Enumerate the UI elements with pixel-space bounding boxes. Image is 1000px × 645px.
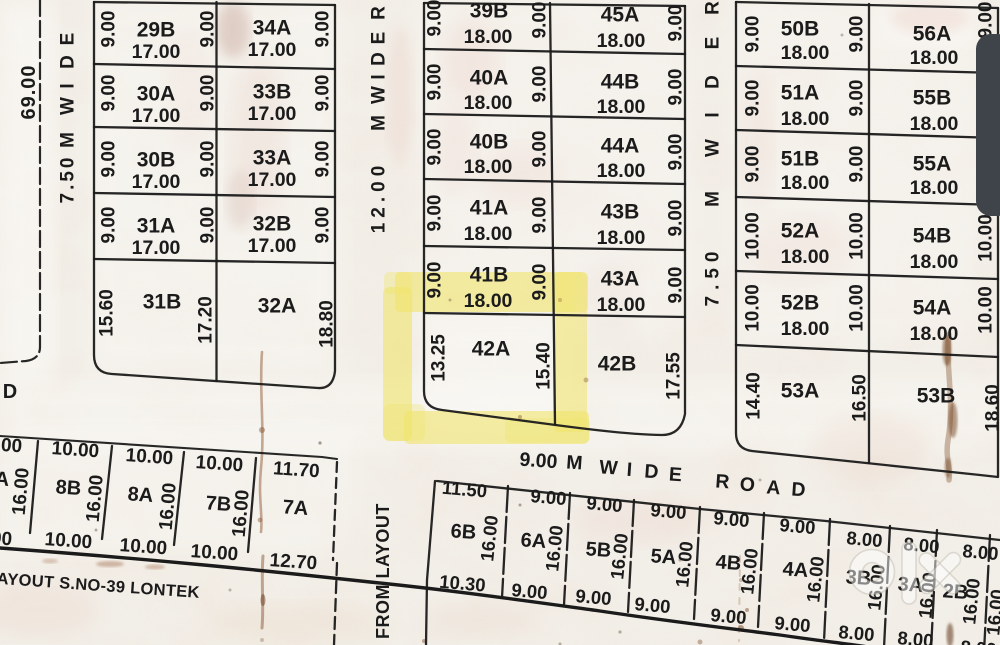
svg-text:7.50: 7.50	[58, 155, 79, 204]
svg-text:18.60: 18.60	[983, 384, 1000, 432]
svg-text:9.00: 9.00	[634, 593, 672, 617]
svg-text:17.00: 17.00	[132, 237, 181, 259]
svg-text:8.00: 8.00	[846, 527, 884, 551]
svg-text:9.00: 9.00	[650, 499, 688, 523]
svg-text:O: O	[739, 473, 756, 496]
svg-text:D: D	[3, 381, 17, 403]
svg-text:15.60: 15.60	[97, 289, 118, 337]
svg-text:69.00: 69.00	[18, 64, 40, 119]
svg-text:9.00: 9.00	[313, 141, 334, 178]
svg-text:9.00: 9.00	[743, 16, 764, 53]
svg-text:17.00: 17.00	[248, 39, 297, 61]
svg-text:9.00: 9.00	[425, 64, 446, 101]
svg-text:8.00: 8.00	[897, 627, 935, 645]
svg-text:9.00: 9.00	[198, 75, 219, 112]
svg-text:9.00: 9.00	[99, 141, 120, 178]
svg-text:9.00: 9.00	[530, 264, 551, 301]
svg-text:9.00: 9.00	[666, 5, 687, 42]
svg-text:9.00: 9.00	[519, 449, 559, 474]
svg-text:18.00: 18.00	[464, 92, 513, 114]
svg-text:18.00: 18.00	[464, 290, 513, 312]
svg-text:9.00: 9.00	[425, 129, 446, 166]
svg-text:16.00: 16.00	[83, 474, 108, 523]
svg-text:D: D	[703, 75, 724, 89]
svg-text:18.00: 18.00	[464, 223, 513, 245]
svg-text:10.00: 10.00	[847, 212, 868, 260]
svg-text:18.00: 18.00	[910, 113, 959, 135]
svg-text:17.00: 17.00	[248, 103, 297, 125]
svg-text:55B: 55B	[913, 87, 952, 110]
svg-text:31B: 31B	[143, 291, 182, 314]
svg-text:10.00: 10.00	[44, 529, 93, 553]
svg-text:51B: 51B	[781, 148, 820, 171]
svg-text:10.00: 10.00	[847, 284, 868, 332]
svg-text:9.00: 9.00	[425, 195, 446, 232]
svg-text:D: D	[58, 55, 79, 69]
svg-text:R: R	[715, 470, 731, 493]
svg-text:9.00: 9.00	[198, 207, 219, 244]
svg-text:10.00: 10.00	[119, 535, 168, 559]
svg-text:8.00: 8.00	[962, 540, 1000, 564]
svg-text:E: E	[668, 463, 683, 486]
svg-text:29B: 29B	[137, 19, 176, 42]
svg-text:9.00: 9.00	[530, 197, 551, 234]
svg-text:17.55: 17.55	[664, 352, 685, 400]
svg-text:39B: 39B	[470, 0, 509, 23]
svg-text:15.40: 15.40	[534, 342, 555, 390]
svg-text:18.00: 18.00	[781, 108, 830, 130]
svg-text:E: E	[703, 37, 724, 50]
svg-text:18.00: 18.00	[781, 318, 830, 340]
svg-text:6B: 6B	[450, 520, 477, 544]
svg-text:9.00: 9.00	[198, 141, 219, 178]
svg-text:54A: 54A	[913, 297, 952, 320]
svg-text:33B: 33B	[253, 81, 292, 104]
svg-text:9.00: 9.00	[425, 262, 446, 299]
svg-text:41A: 41A	[470, 197, 509, 220]
svg-text:9.00: 9.00	[666, 200, 687, 237]
svg-text:M: M	[703, 191, 724, 207]
svg-text:10.00: 10.00	[743, 212, 764, 260]
svg-text:34A: 34A	[253, 17, 292, 40]
svg-text:53A: 53A	[781, 380, 820, 403]
svg-text:10.30: 10.30	[439, 571, 487, 596]
svg-text:17.00: 17.00	[132, 105, 181, 127]
svg-text:16.00: 16.00	[229, 489, 254, 538]
svg-text:10.00: 10.00	[976, 286, 997, 334]
svg-text:18.00: 18.00	[910, 177, 959, 199]
svg-text:18.00: 18.00	[597, 30, 646, 52]
svg-text:I: I	[369, 74, 390, 79]
svg-text:9.00: 9.00	[99, 207, 120, 244]
svg-text:9.00: 9.00	[530, 131, 551, 168]
svg-text:30A: 30A	[137, 83, 176, 106]
svg-text:W: W	[58, 97, 79, 115]
svg-text:41B: 41B	[470, 264, 509, 287]
svg-text:17.20: 17.20	[196, 296, 217, 344]
svg-text:9.00: 9.00	[198, 11, 219, 48]
svg-text:W: W	[598, 456, 618, 479]
svg-text:18.00: 18.00	[781, 246, 830, 268]
svg-text:43A: 43A	[601, 268, 640, 291]
svg-text:M: M	[566, 451, 584, 474]
svg-text:9.00: 9.00	[313, 75, 334, 112]
svg-text:9.00: 9.00	[847, 16, 868, 53]
svg-text:12.00: 12.00	[369, 161, 390, 234]
svg-text:FROM LAYOUT: FROM LAYOUT	[373, 503, 393, 639]
svg-text:18.00: 18.00	[910, 47, 959, 69]
svg-text:16.00: 16.00	[156, 482, 181, 531]
svg-text:9.00: 9.00	[666, 134, 687, 171]
svg-text:18.00: 18.00	[910, 251, 959, 273]
svg-text:18.00: 18.00	[597, 96, 646, 118]
svg-text:7A: 7A	[282, 496, 309, 520]
svg-text:9.00: 9.00	[530, 485, 568, 509]
svg-text:9.00: 9.00	[774, 612, 812, 636]
svg-text:44B: 44B	[601, 71, 640, 94]
svg-text:56A: 56A	[913, 23, 952, 46]
svg-text:E: E	[369, 32, 390, 45]
svg-text:A: A	[766, 476, 782, 499]
svg-text:40B: 40B	[470, 131, 509, 154]
svg-text:52A: 52A	[781, 220, 820, 243]
svg-text:18.00: 18.00	[910, 323, 959, 345]
svg-text:18.00: 18.00	[464, 156, 513, 178]
svg-text:W: W	[703, 139, 724, 157]
svg-text:D: D	[791, 478, 807, 501]
svg-text:9.00: 9.00	[847, 146, 868, 183]
svg-text:9.00: 9.00	[743, 80, 764, 117]
svg-text:18.00: 18.00	[597, 294, 646, 316]
svg-text:7.50: 7.50	[703, 246, 724, 307]
svg-text:9.00: 9.00	[713, 507, 751, 531]
svg-text:9.00: 9.00	[313, 207, 334, 244]
svg-text:44A: 44A	[601, 135, 640, 158]
svg-text:9.00: 9.00	[743, 146, 764, 183]
svg-text:9A: 9A	[0, 467, 10, 491]
svg-text:11.50: 11.50	[441, 477, 488, 502]
svg-text:33A: 33A	[253, 147, 292, 170]
svg-text:16.00: 16.00	[9, 467, 34, 516]
svg-text:32A: 32A	[258, 295, 297, 318]
svg-text:E: E	[58, 33, 79, 46]
svg-text:11.70: 11.70	[272, 458, 320, 482]
svg-text:18.00: 18.00	[781, 172, 830, 194]
svg-text:9.00: 9.00	[99, 75, 120, 112]
svg-text:I: I	[58, 83, 79, 88]
svg-text:D: D	[644, 460, 660, 483]
svg-text:17.00: 17.00	[132, 41, 181, 63]
svg-text:18.00: 18.00	[781, 42, 830, 64]
svg-text:10.00: 10.00	[125, 445, 174, 469]
svg-text:10.00: 10.00	[190, 541, 239, 565]
svg-text:40A: 40A	[470, 67, 509, 90]
svg-text:10.00: 10.00	[976, 214, 997, 262]
svg-text:17.00: 17.00	[248, 169, 297, 191]
svg-text:31A: 31A	[137, 215, 176, 238]
svg-text:51A: 51A	[781, 82, 820, 105]
svg-text:9.00: 9.00	[530, 2, 551, 39]
svg-text:18.00: 18.00	[464, 26, 513, 48]
svg-text:45A: 45A	[601, 4, 640, 27]
svg-text:R: R	[703, 1, 724, 15]
svg-text:9.00: 9.00	[710, 604, 748, 628]
svg-text:30B: 30B	[137, 149, 176, 172]
svg-text:9.00: 9.00	[575, 585, 613, 609]
svg-text:17.00: 17.00	[248, 235, 297, 257]
svg-text:14.40: 14.40	[744, 372, 765, 420]
svg-text:M: M	[58, 132, 79, 148]
svg-text:16.50: 16.50	[850, 374, 871, 422]
svg-text:43B: 43B	[601, 201, 640, 224]
svg-text:13.25: 13.25	[429, 334, 450, 382]
svg-text:9.00: 9.00	[976, 2, 997, 39]
svg-text:50B: 50B	[781, 18, 820, 41]
svg-text:9.00: 9.00	[666, 69, 687, 106]
svg-text:55A: 55A	[913, 153, 952, 176]
svg-text:M: M	[369, 115, 390, 131]
svg-text:8A: 8A	[127, 483, 154, 507]
svg-text:10.00: 10.00	[51, 438, 100, 462]
svg-text:10.00: 10.00	[195, 452, 244, 476]
svg-text:8.00: 8.00	[838, 621, 876, 645]
svg-text:9.00: 9.00	[530, 66, 551, 103]
svg-text:I: I	[703, 112, 724, 117]
svg-text:18.00: 18.00	[597, 160, 646, 182]
svg-text:9.00: 9.00	[313, 11, 334, 48]
svg-text:42A: 42A	[472, 338, 511, 361]
svg-text:9.00: 9.00	[779, 514, 817, 538]
svg-text:9.00: 9.00	[425, 0, 446, 36]
svg-text:9.00: 9.00	[99, 11, 120, 48]
svg-text:R: R	[369, 6, 390, 20]
svg-text:54B: 54B	[913, 225, 952, 248]
svg-text:9.00: 9.00	[847, 80, 868, 117]
svg-text:8B: 8B	[55, 476, 82, 500]
svg-text:9.00: 9.00	[511, 579, 549, 603]
svg-text:42B: 42B	[598, 353, 637, 376]
svg-text:18.00: 18.00	[597, 227, 646, 249]
svg-text:18.80: 18.80	[317, 300, 338, 348]
svg-text:7B: 7B	[205, 492, 232, 516]
svg-text:D: D	[369, 52, 390, 66]
svg-text:9.00: 9.00	[666, 267, 687, 304]
svg-text:9.00: 9.00	[586, 492, 624, 516]
svg-text:W: W	[369, 86, 390, 104]
svg-text:17.00: 17.00	[132, 171, 181, 193]
svg-text:52B: 52B	[781, 292, 820, 315]
svg-text:10.00: 10.00	[0, 433, 23, 457]
svg-text:32B: 32B	[253, 213, 292, 236]
svg-text:53B: 53B	[917, 385, 956, 408]
svg-text:10.00: 10.00	[743, 284, 764, 332]
